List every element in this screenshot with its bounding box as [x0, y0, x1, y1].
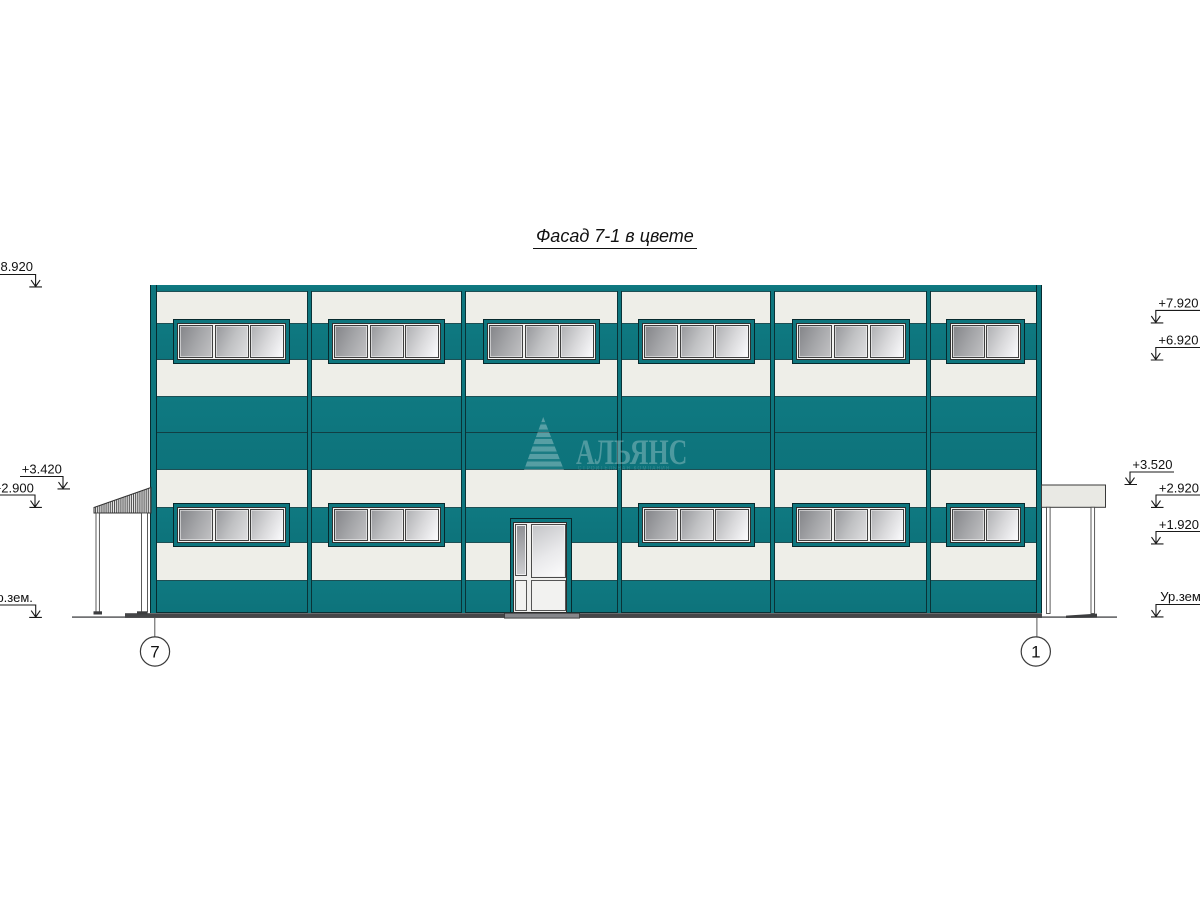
svg-text:7: 7: [150, 643, 159, 662]
svg-text:+1.920: +1.920: [1159, 517, 1199, 532]
svg-text:Ур.зем.: Ур.зем.: [1160, 589, 1200, 604]
svg-text:+3.520: +3.520: [1132, 457, 1172, 472]
svg-text:+6.920: +6.920: [1158, 333, 1198, 348]
svg-text:+7.920: +7.920: [1158, 296, 1198, 311]
svg-text:+2.920: +2.920: [1159, 481, 1199, 496]
svg-text:+8.920: +8.920: [0, 259, 33, 274]
svg-text:+3.420: +3.420: [22, 462, 62, 477]
svg-text:1: 1: [1031, 643, 1040, 662]
svg-text:+2.900: +2.900: [0, 480, 34, 495]
svg-text:Ур.зем.: Ур.зем.: [0, 590, 33, 605]
